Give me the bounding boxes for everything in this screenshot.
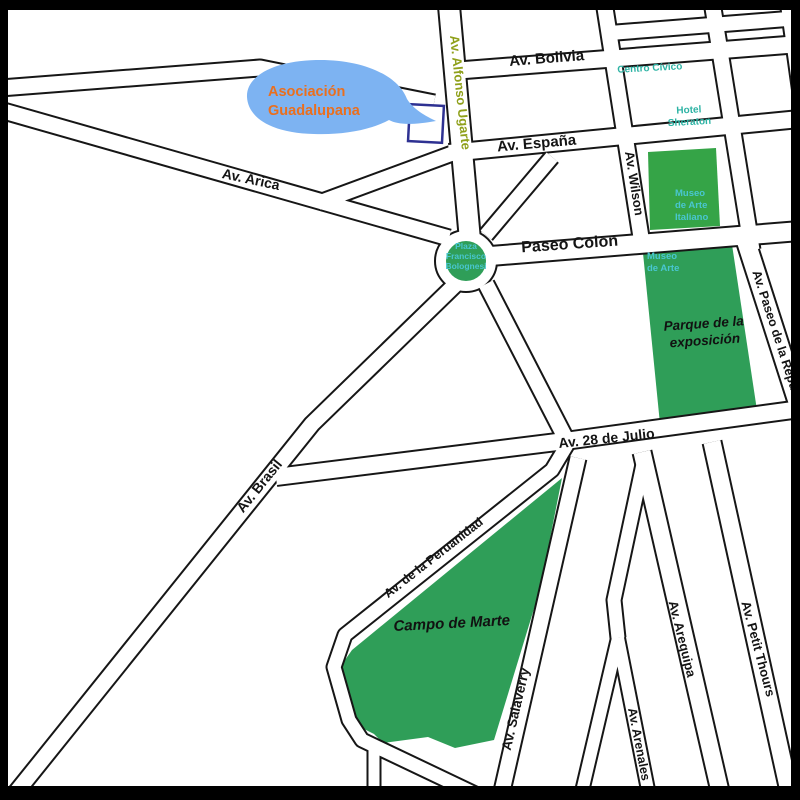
map-window: Av. BoliviaAv. EspañaPaseo ColonAv. 28 d… — [0, 0, 800, 800]
frame-left — [0, 0, 8, 800]
label-museo-arte-italiano: Museode ArteItaliano — [675, 188, 708, 223]
label-museo-de-arte: Museode Arte — [647, 251, 679, 274]
frame-top — [0, 0, 800, 10]
lima-street-map: Av. BoliviaAv. EspañaPaseo ColonAv. 28 d… — [0, 0, 800, 800]
frame-bottom — [0, 786, 800, 800]
frame-right — [791, 0, 800, 800]
